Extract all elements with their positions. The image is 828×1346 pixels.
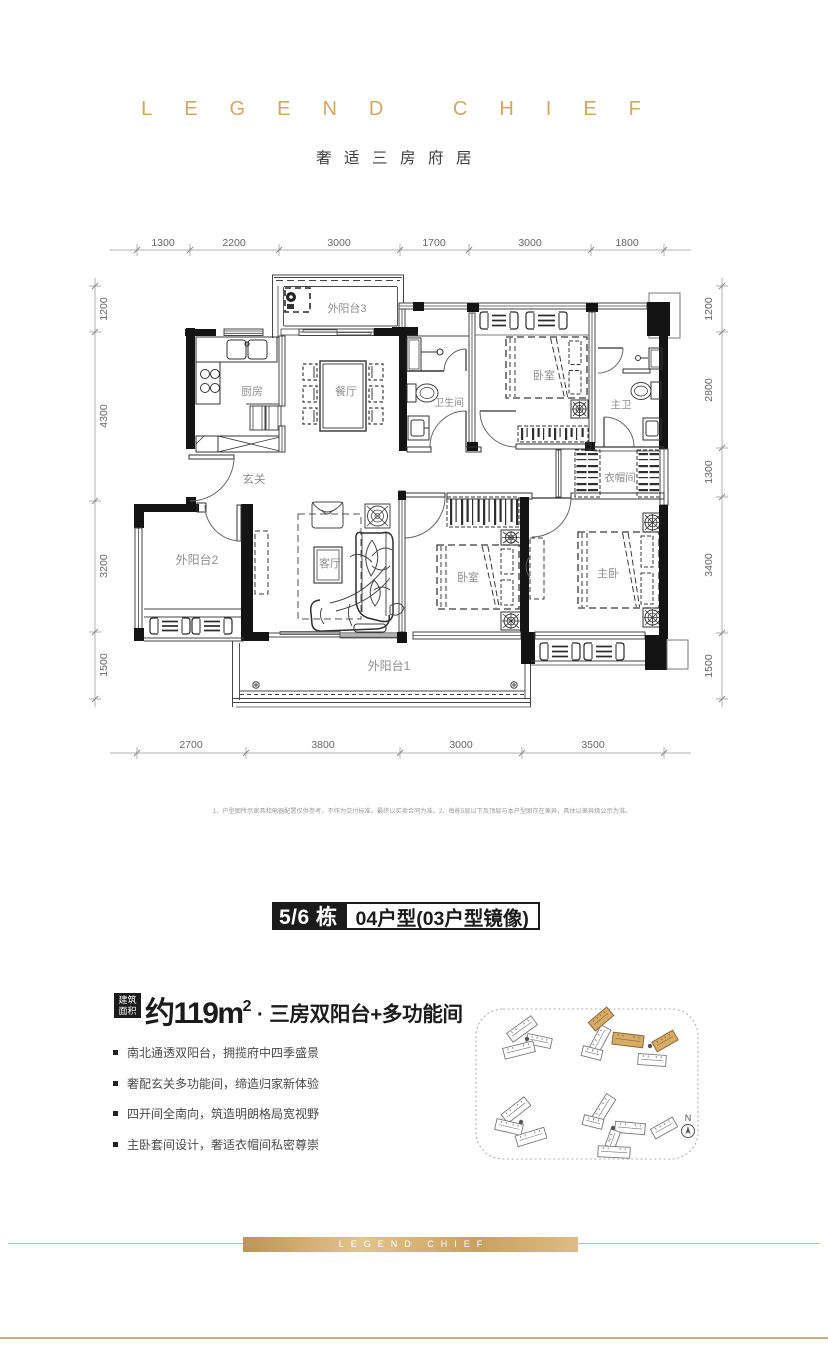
svg-text:卫生间: 卫生间 [434,396,464,409]
svg-text:3000: 3000 [327,237,351,249]
svg-text:2800: 2800 [703,378,715,402]
svg-text:3000: 3000 [518,237,542,249]
svg-text:厨房: 厨房 [241,385,263,398]
svg-text:客厅: 客厅 [319,556,341,570]
svg-text:主卫: 主卫 [611,399,632,411]
svg-text:1700: 1700 [422,237,446,249]
svg-text:N: N [685,1113,692,1123]
svg-text:3500: 3500 [581,739,605,751]
svg-text:1300: 1300 [703,460,715,484]
svg-text:餐厅: 餐厅 [335,384,357,398]
svg-text:2700: 2700 [179,739,203,751]
svg-text:外阳台3: 外阳台3 [327,301,366,315]
svg-text:4300: 4300 [98,404,110,428]
svg-text:主卧: 主卧 [597,567,619,580]
svg-text:1800: 1800 [615,237,639,249]
svg-text:1500: 1500 [703,654,715,678]
svg-text:1500: 1500 [98,653,110,677]
svg-text:3200: 3200 [98,554,110,578]
svg-text:3000: 3000 [449,739,473,751]
svg-text:1300: 1300 [151,237,175,249]
svg-text:3800: 3800 [311,739,335,751]
svg-text:1200: 1200 [98,297,110,321]
svg-text:衣帽间: 衣帽间 [604,471,636,484]
svg-text:玄关: 玄关 [243,472,266,486]
svg-text:卧室: 卧室 [457,570,479,584]
svg-text:1200: 1200 [703,297,715,321]
svg-text:卧室: 卧室 [533,368,555,382]
svg-text:外阳台2: 外阳台2 [176,552,219,567]
svg-text:外阳台1: 外阳台1 [368,658,411,673]
svg-text:3400: 3400 [703,553,715,577]
svg-text:2200: 2200 [222,237,246,249]
